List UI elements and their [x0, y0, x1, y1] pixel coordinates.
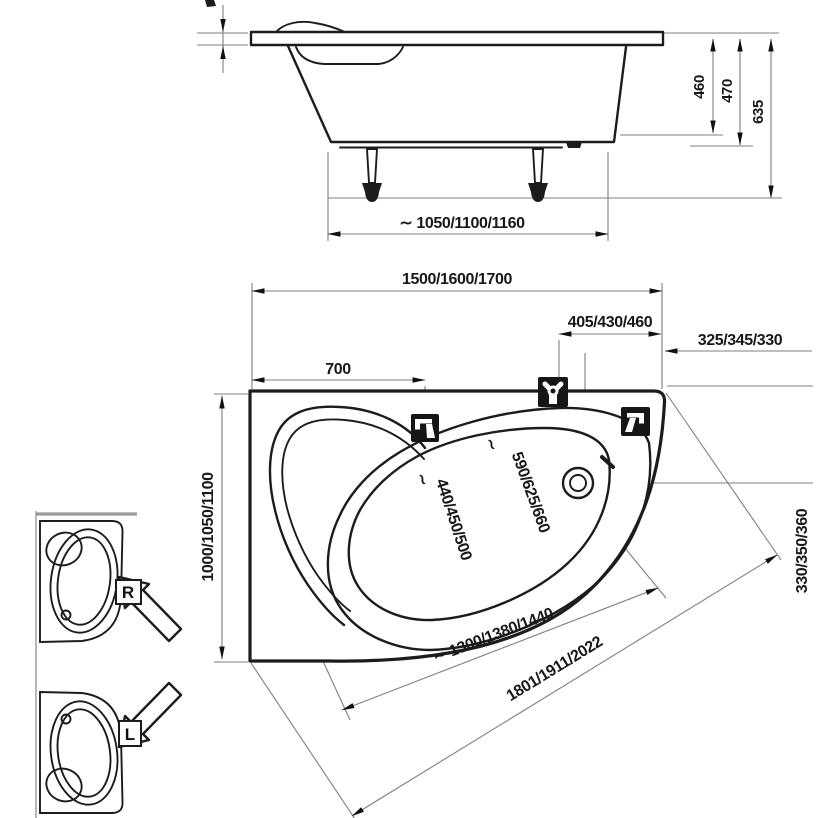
tub-leg-right — [528, 149, 548, 202]
bathtub-technical-drawing: 460 470 635 ∼ 1050/1100/1160 — [0, 0, 818, 818]
tub-rim-section — [251, 32, 663, 45]
drawing-canvas: 460 470 635 ∼ 1050/1100/1160 — [0, 0, 818, 818]
left-orientation-icon: L — [40, 683, 181, 813]
drain-outlet-stub — [566, 142, 582, 148]
mixer-icon-top — [538, 377, 568, 407]
dim-height-total: 635 — [750, 100, 767, 124]
plan-view: 1500/1600/1700 405/430/460 325/345/330 7… — [200, 271, 813, 818]
cropped-dim-label-fragment — [205, 0, 216, 7]
dim-tap-offset: 405/430/460 — [568, 314, 653, 331]
dim-feet-span: ∼ 1050/1100/1160 — [399, 215, 525, 232]
dim-length: 1500/1600/1700 — [402, 271, 513, 288]
headrest-bump — [276, 22, 345, 32]
faucet-icon-right — [621, 407, 650, 436]
dim-height-overflow: 470 — [719, 79, 736, 103]
left-label: L — [125, 725, 135, 744]
headrest-recess — [296, 47, 403, 64]
tub-leg-left — [362, 149, 382, 202]
dim-drain-offset: 330/350/360 — [794, 508, 811, 593]
orientation-icons: R L — [36, 511, 181, 818]
dim-corner-offset: 325/345/330 — [698, 332, 783, 349]
dim-left-offset: 700 — [325, 361, 351, 378]
tub-body-outline — [288, 46, 626, 142]
faucet-icon-left — [411, 414, 439, 442]
dim-width: 1000/1050/1100 — [200, 472, 217, 582]
side-view: 460 470 635 ∼ 1050/1100/1160 — [197, 0, 782, 241]
right-orientation-icon: R — [40, 521, 181, 642]
bathtub-side-profile — [251, 22, 663, 202]
right-label: R — [122, 583, 134, 602]
dim-height-rim: 460 — [691, 75, 708, 99]
